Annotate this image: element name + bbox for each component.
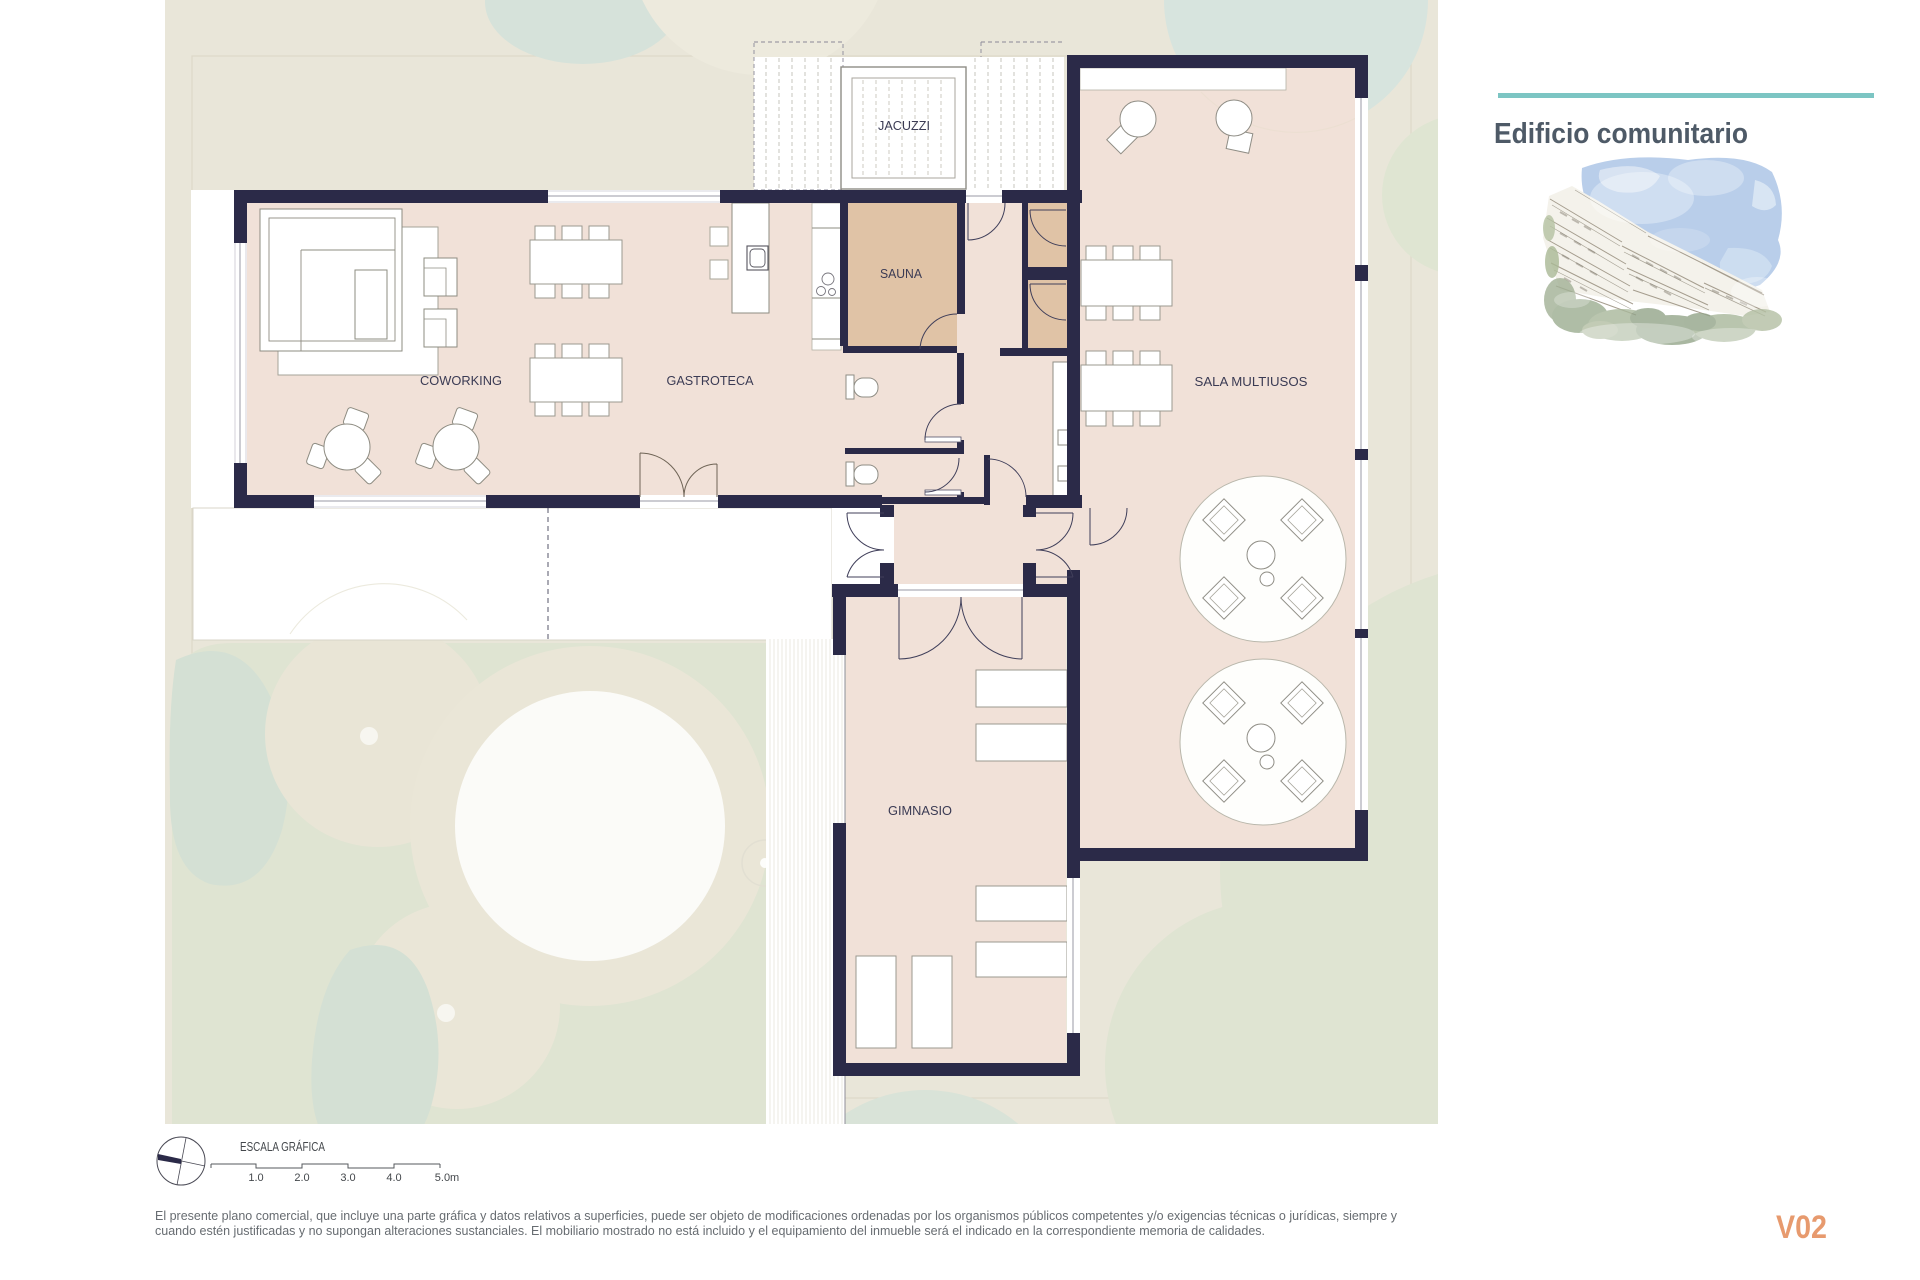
svg-text:SAUNA: SAUNA (880, 266, 922, 281)
svg-text:2.0: 2.0 (294, 1172, 309, 1184)
svg-text:COWORKING: COWORKING (420, 373, 502, 388)
svg-text:GIMNASIO: GIMNASIO (888, 803, 952, 818)
svg-text:cuando estén justificadas y no: cuando estén justificadas y no supongan … (155, 1223, 1265, 1238)
svg-text:JACUZZI: JACUZZI (878, 118, 930, 133)
svg-text:GASTROTECA: GASTROTECA (667, 373, 754, 388)
svg-text:4.0: 4.0 (386, 1172, 401, 1184)
svg-text:El presente plano comercial, q: El presente plano comercial, que incluye… (155, 1208, 1397, 1223)
svg-text:Edificio comunitario: Edificio comunitario (1494, 118, 1748, 150)
svg-text:5.0m: 5.0m (435, 1172, 459, 1184)
svg-text:V02: V02 (1776, 1209, 1827, 1245)
svg-text:SALA MULTIUSOS: SALA MULTIUSOS (1195, 374, 1308, 389)
svg-text:3.0: 3.0 (340, 1172, 355, 1184)
svg-text:ESCALA GRÁFICA: ESCALA GRÁFICA (240, 1139, 326, 1154)
svg-text:1.0: 1.0 (248, 1172, 263, 1184)
